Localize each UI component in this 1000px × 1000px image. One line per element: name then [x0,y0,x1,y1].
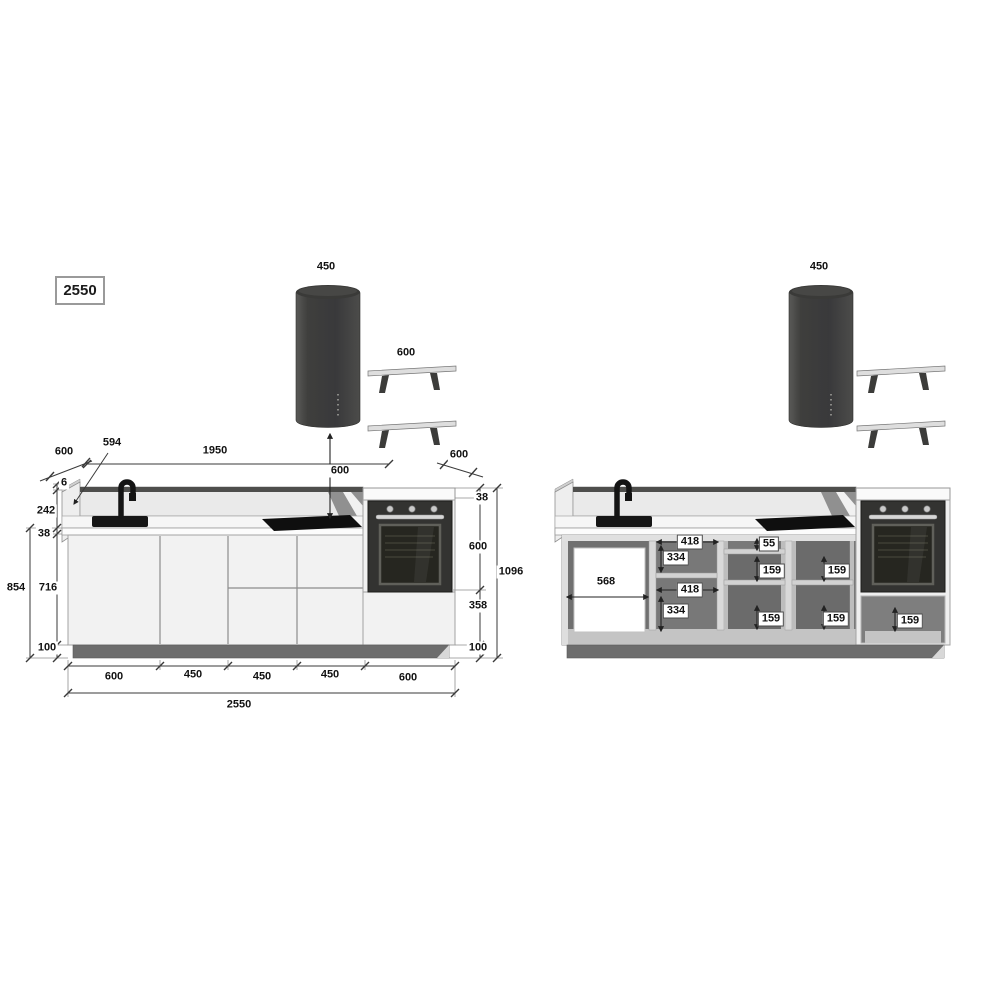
dim-oven-unit-drawer: 159 [897,614,923,629]
dim-depth-left: 600 [53,446,75,459]
dim-wall-span: 1950 [201,445,229,458]
countertop-edge [62,528,363,535]
dim-total-width: 2550 [225,699,253,712]
dim-bottom-width-2: 450 [182,669,204,682]
dim-shelf-bottom-height: 334 [663,604,689,619]
dim-hood-width-left: 450 [315,261,337,274]
appliance-gap [574,548,645,632]
dim-oven-height: 600 [467,541,489,554]
dim-countertop-thickness: 38 [36,528,52,541]
countertop-edge [555,528,856,535]
drawing-canvas [0,0,1000,1000]
dim-bottom-width-5: 600 [397,672,419,685]
plinth [567,645,944,658]
tall-unit-top [363,488,455,500]
dim-side-panel: 594 [101,437,123,450]
dim-worktop-height: 854 [5,582,27,595]
base-cabinets [68,535,365,645]
plinth [73,645,449,658]
dim-shelf-bottom-width: 418 [677,583,703,598]
dim-base-unit-height: 716 [37,582,59,595]
dim-shelves-width: 600 [395,347,417,360]
left-view [26,285,503,697]
dim-drawer-b-top: 159 [824,564,850,579]
dim-appliance-gap-width: 568 [595,576,617,589]
dim-drawer-a-middle: 159 [759,564,785,579]
dim-below-oven-height: 358 [467,600,489,613]
dim-bottom-width-1: 600 [103,671,125,684]
dim-drawer-a-top: 55 [759,537,779,552]
dim-tall-countertop-thickness: 38 [474,492,490,505]
dim-shelf-top-width: 418 [677,535,703,550]
right-view [555,285,950,658]
dim-bottom-width-3: 450 [251,671,273,684]
dim-hood-width-right: 450 [808,261,830,274]
shelf-board [656,573,717,578]
dim-plinth-height: 100 [36,642,58,655]
dim-hood-clearance: 600 [329,465,351,478]
dim-tall-unit-height: 1096 [497,566,525,579]
dim-panel-thickness: 6 [59,477,69,490]
kitchen-technical-drawing: 2550 450 600 600 594 1950 600 600 6 242 … [0,0,1000,1000]
dim-backsplash-height: 242 [35,505,57,518]
dim-depth-right: 600 [448,449,470,462]
dim-drawer-a-bottom: 159 [758,612,784,627]
dim-bottom-width-4: 450 [319,669,341,682]
tall-unit-top [856,488,950,500]
dim-drawer-b-bottom: 159 [823,612,849,627]
total-width-title-box: 2550 [55,276,105,305]
dim-tall-plinth-height: 100 [467,642,489,655]
dim-shelf-top-height: 334 [663,551,689,566]
sink [596,516,652,527]
